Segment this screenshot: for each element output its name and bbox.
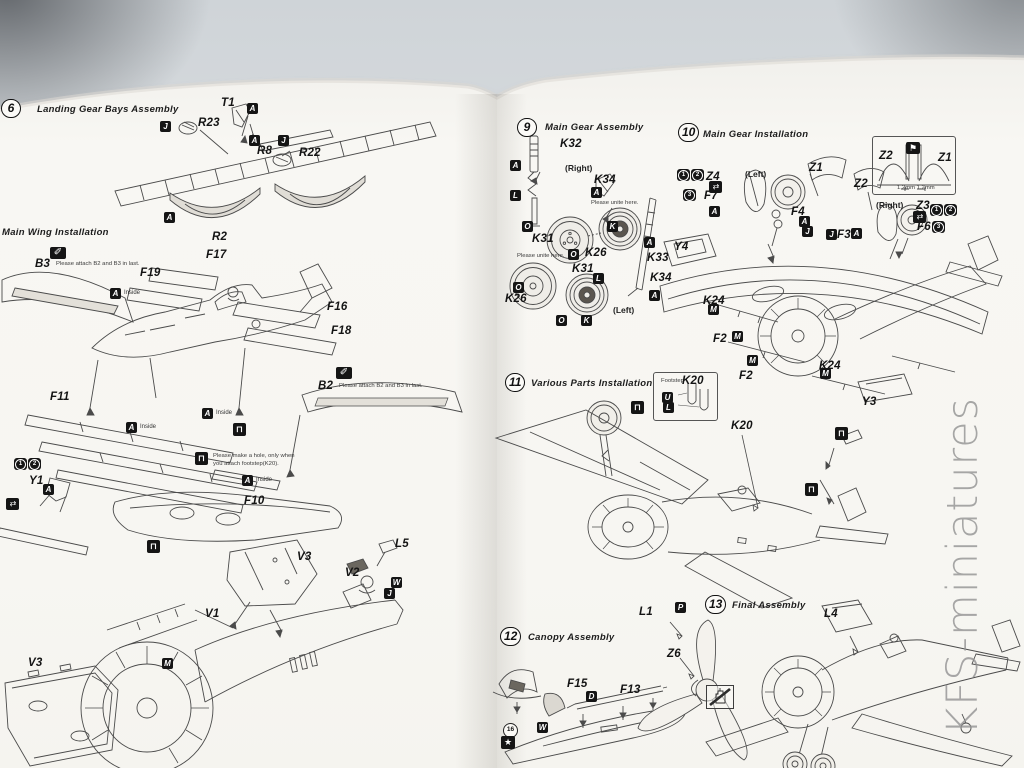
- paint-code-o: O: [556, 315, 567, 326]
- step-number-6: 6: [1, 99, 21, 118]
- glue-icon: ✐: [50, 247, 66, 259]
- paint-code-a: A: [247, 103, 258, 114]
- mirror-parts-icon: ⇄: [6, 498, 19, 510]
- orientation-label: (Left): [613, 305, 634, 315]
- paint-code-a: A: [709, 206, 720, 217]
- part-label-k33: K33: [647, 252, 669, 264]
- part-label-k26: K26: [505, 293, 527, 305]
- part-label-y1: Y1: [29, 475, 43, 487]
- paint-code-l: L: [510, 190, 521, 201]
- paint-code-m: M: [708, 304, 719, 315]
- note-text: Please make a hole, only when you attach…: [213, 453, 301, 468]
- paint-code-a: A: [164, 212, 175, 223]
- note-text: 1.2mm 1.2mm: [897, 185, 935, 193]
- part-label-z1: Z1: [938, 152, 952, 164]
- paint-code-a: A: [126, 422, 137, 433]
- paint-code-o: O: [513, 282, 524, 293]
- footstep-icon: ⊓: [805, 483, 818, 496]
- part-label-f2: F2: [713, 333, 727, 345]
- part-label-r2: R2: [212, 231, 227, 243]
- paint-code-k: K: [607, 221, 618, 232]
- paint-code-l: L: [593, 273, 604, 284]
- watermark-text: KFS-miniatures: [938, 397, 988, 735]
- orientation-label: (Right): [565, 163, 592, 173]
- paint-code-a: A: [510, 160, 521, 171]
- part-label-l4: L4: [824, 608, 838, 620]
- paint-code-a: A: [242, 475, 253, 486]
- paint-code-a: A: [202, 408, 213, 419]
- sequence-number-2: 2: [944, 204, 957, 216]
- step-title: Landing Gear Bays Assembly: [37, 104, 179, 115]
- part-label-k20: K20: [731, 420, 753, 432]
- sequence-number-2: 2: [28, 458, 41, 470]
- part-label-f3: F3: [837, 229, 851, 241]
- part-label-f19: F19: [140, 267, 160, 279]
- part-label-k20: K20: [682, 375, 704, 387]
- step-number-9: 9: [517, 118, 537, 137]
- sequence-number-1: 1: [930, 204, 943, 216]
- part-label-z1: Z1: [809, 162, 823, 174]
- footstep-icon: ⊓: [835, 427, 848, 440]
- part-label-l5: L5: [395, 538, 409, 550]
- paint-code-j: J: [160, 121, 171, 132]
- orientation-label: (Right): [876, 200, 903, 210]
- orientation-label: (Left): [745, 169, 766, 179]
- part-label-k26: K26: [585, 247, 607, 259]
- paint-code-m: M: [162, 658, 173, 669]
- part-label-f11: F11: [50, 391, 70, 403]
- part-label-f16: F16: [327, 301, 347, 313]
- sequence-number-1: 1: [677, 169, 690, 181]
- part-label-k34: K34: [650, 272, 672, 284]
- note-text: Please attach B2 and B3 in last.: [339, 383, 423, 391]
- paint-code-j: J: [278, 135, 289, 146]
- note-text: Please unite here.: [591, 200, 639, 208]
- step11-aircraft-diagram: [490, 390, 895, 612]
- step-title: Main Gear Assembly: [545, 122, 644, 133]
- part-label-f13: F13: [620, 684, 640, 696]
- paint-code-a: A: [591, 187, 602, 198]
- paint-code-j: J: [826, 229, 837, 240]
- step9-gear-diagram: [500, 128, 675, 340]
- part-label-l1: L1: [639, 606, 653, 618]
- part-label-f7: F7: [704, 190, 718, 202]
- step6-spar-diagram: [100, 96, 495, 246]
- instruction-sheet-photo: 6Landing Gear Bays AssemblyMain Wing Ins…: [0, 0, 1024, 768]
- paint-code-a: A: [43, 484, 54, 495]
- step-number-10: 10: [678, 123, 699, 142]
- part-label-t1: T1: [221, 97, 235, 109]
- footstep-icon: ⊓: [147, 540, 160, 553]
- paint-code-m: M: [820, 368, 831, 379]
- part-label-k31: K31: [532, 233, 554, 245]
- inside-label: Inside: [216, 410, 232, 416]
- part-label-b3: B3: [35, 258, 50, 270]
- sequence-number-3: 3: [683, 189, 696, 201]
- note-text: Please unite here.: [517, 253, 565, 261]
- inside-label: Inside: [256, 477, 272, 483]
- paint-code-k: K: [581, 315, 592, 326]
- step-number-12: 12: [500, 627, 521, 646]
- part-label-r23: R23: [198, 117, 220, 129]
- sequence-number-1: 1: [14, 458, 27, 470]
- step-title: Various Parts Installation: [531, 378, 652, 389]
- footstep-icon: ⊓: [195, 452, 208, 465]
- paint-code-m: M: [732, 331, 743, 342]
- part-label-r8: R8: [257, 145, 272, 157]
- paint-code-a: A: [110, 288, 121, 299]
- sequence-number-3: 3: [932, 221, 945, 233]
- step-title: Main Gear Installation: [703, 129, 808, 140]
- part-label-k31: K31: [572, 263, 594, 275]
- part-label-v1: V1: [205, 608, 219, 620]
- glue-icon: ✐: [336, 367, 352, 379]
- part-label-r22: R22: [299, 147, 321, 159]
- v3-panel-diagram: [0, 648, 130, 768]
- part-label-v2: V2: [345, 567, 359, 579]
- footstep-icon: ⊓: [233, 423, 246, 436]
- paint-code-o: O: [522, 221, 533, 232]
- star-icon: ★: [501, 736, 515, 749]
- part-label-z2: Z2: [879, 150, 893, 162]
- footstep-icon: ⊓: [631, 401, 644, 414]
- step-title: Canopy Assembly: [528, 632, 615, 643]
- paint-code-a: A: [644, 237, 655, 248]
- part-label-k32: K32: [560, 138, 582, 150]
- part-label-f17: F17: [206, 249, 226, 261]
- step7-wing-diagram: [0, 240, 495, 570]
- note-text: Please attach B2 and B3 in last.: [56, 261, 140, 269]
- sequence-number-2: 2: [691, 169, 704, 181]
- part-label-k34: K34: [594, 174, 616, 186]
- part-label-f2: F2: [739, 370, 753, 382]
- decal-flag-icon: ⚑: [906, 142, 920, 154]
- step-title: Final Assembly: [732, 600, 806, 611]
- part-label-z6: Z6: [667, 648, 681, 660]
- paint-code-o: O: [568, 249, 579, 260]
- paint-code-d: D: [586, 691, 597, 702]
- part-label-f15: F15: [567, 678, 587, 690]
- paint-code-w: W: [391, 577, 402, 588]
- part-label-y4: Y4: [674, 241, 688, 253]
- step-title: Main Wing Installation: [2, 227, 109, 238]
- step-number-13: 13: [705, 595, 726, 614]
- part-label-v3: V3: [297, 551, 311, 563]
- part-label-v3: V3: [28, 657, 42, 669]
- paint-code-a: A: [649, 290, 660, 301]
- paint-code-j: J: [384, 588, 395, 599]
- part-label-y3: Y3: [862, 396, 876, 408]
- note-text: Footstep: [661, 378, 684, 386]
- paint-code-j: J: [802, 226, 813, 237]
- inside-label: Inside: [140, 424, 156, 430]
- part-label-f18: F18: [331, 325, 351, 337]
- part-label-f10: F10: [244, 495, 264, 507]
- paint-code-w: W: [537, 722, 548, 733]
- no-glue-icon: [706, 685, 734, 709]
- paint-code-l: L: [663, 402, 674, 413]
- inside-label: Inside: [124, 290, 140, 296]
- part-label-f6: F6: [917, 221, 931, 233]
- paint-code-a: A: [851, 228, 862, 239]
- paint-code-m: M: [747, 355, 758, 366]
- paint-code-p: P: [675, 602, 686, 613]
- part-label-b2: B2: [318, 380, 333, 392]
- part-label-z2: Z2: [854, 178, 868, 190]
